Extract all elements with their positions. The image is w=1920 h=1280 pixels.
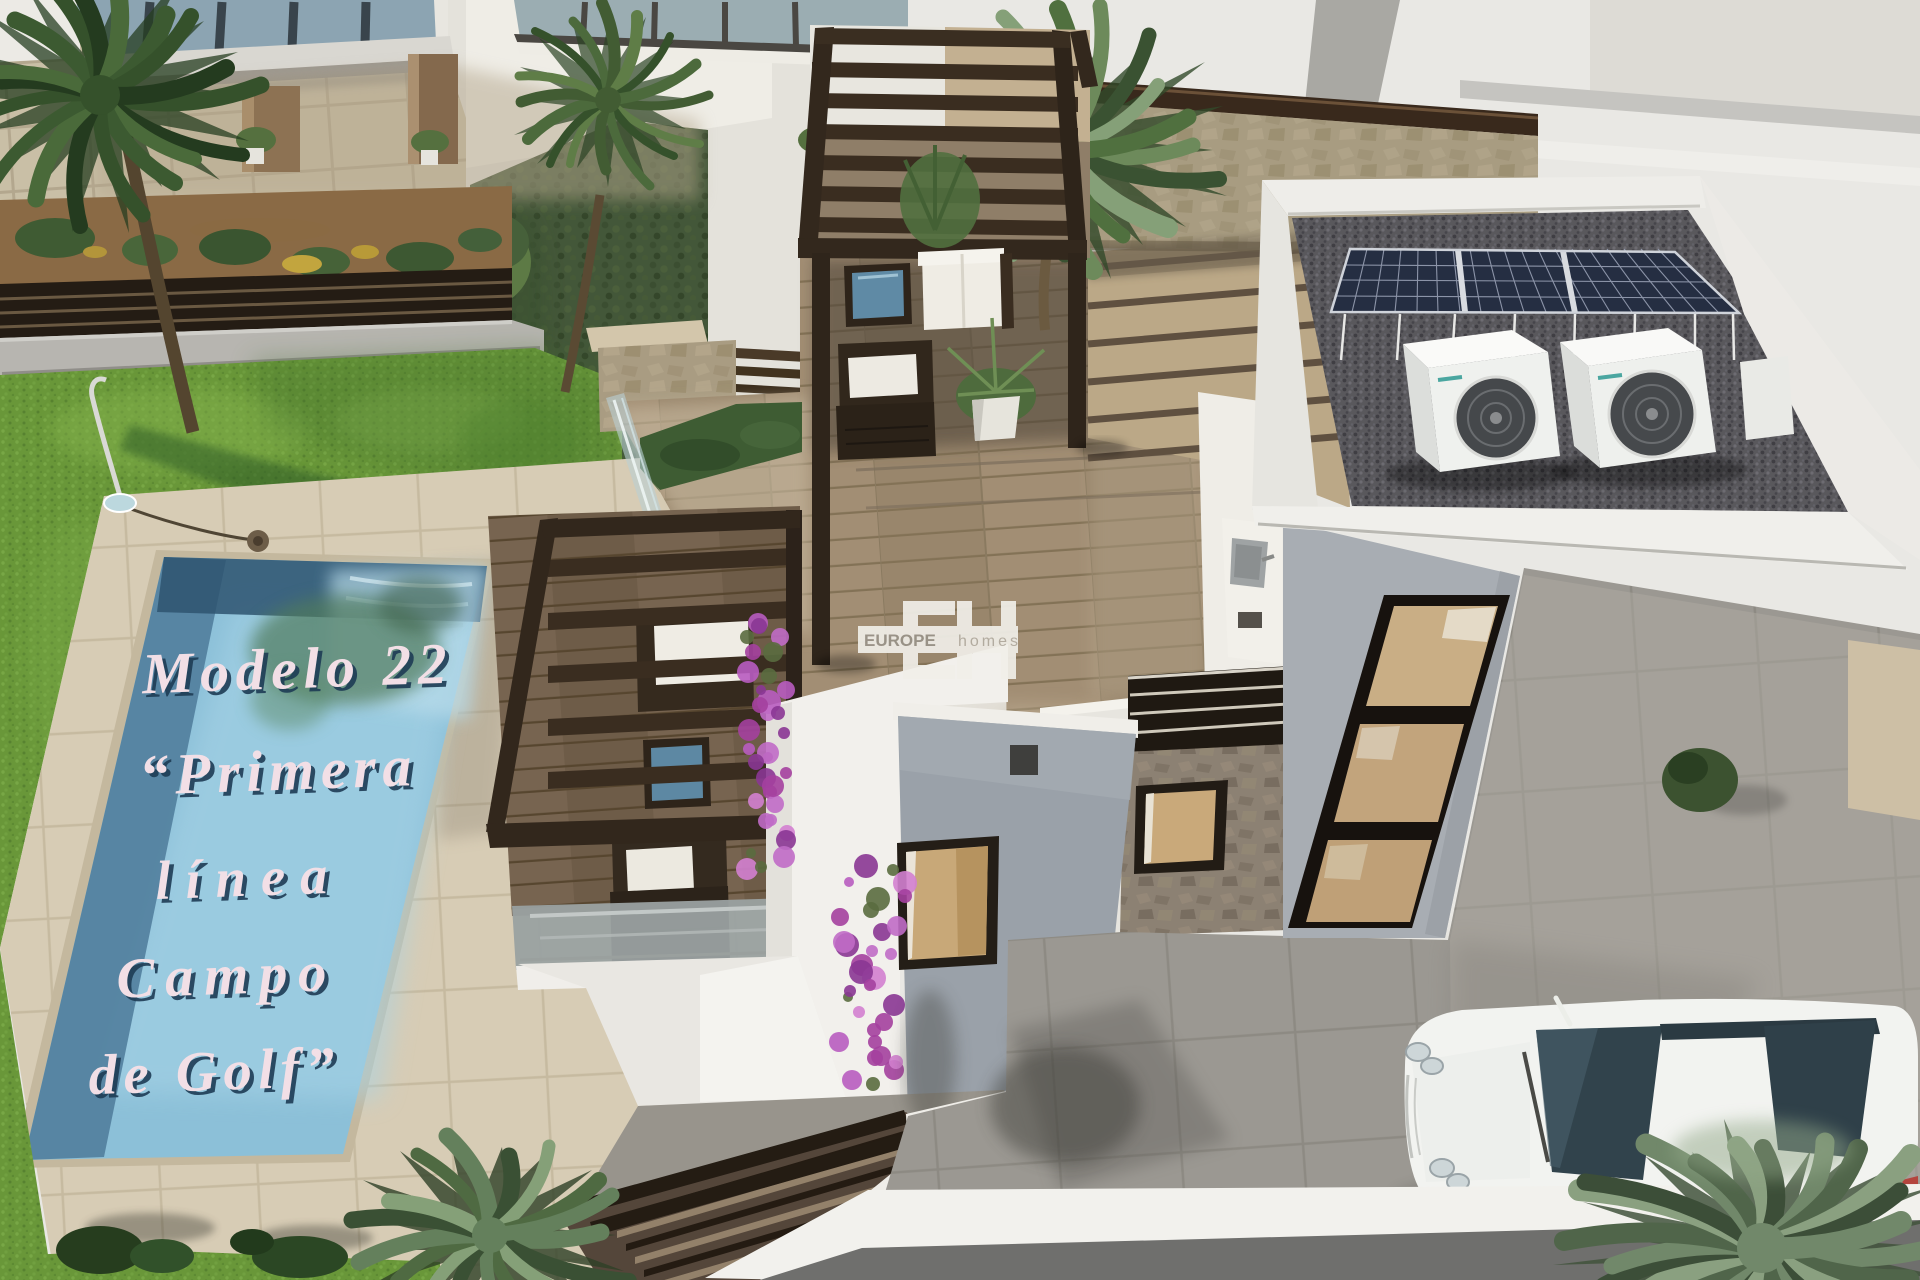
svg-text:EUROPE: EUROPE (864, 631, 936, 650)
svg-text:homes: homes (958, 633, 1021, 650)
svg-text:de Golf”: de Golf” (87, 1036, 335, 1108)
svg-text:“Primera: “Primera (138, 733, 412, 807)
svg-text:Modelo 22: Modelo 22 (140, 631, 448, 707)
